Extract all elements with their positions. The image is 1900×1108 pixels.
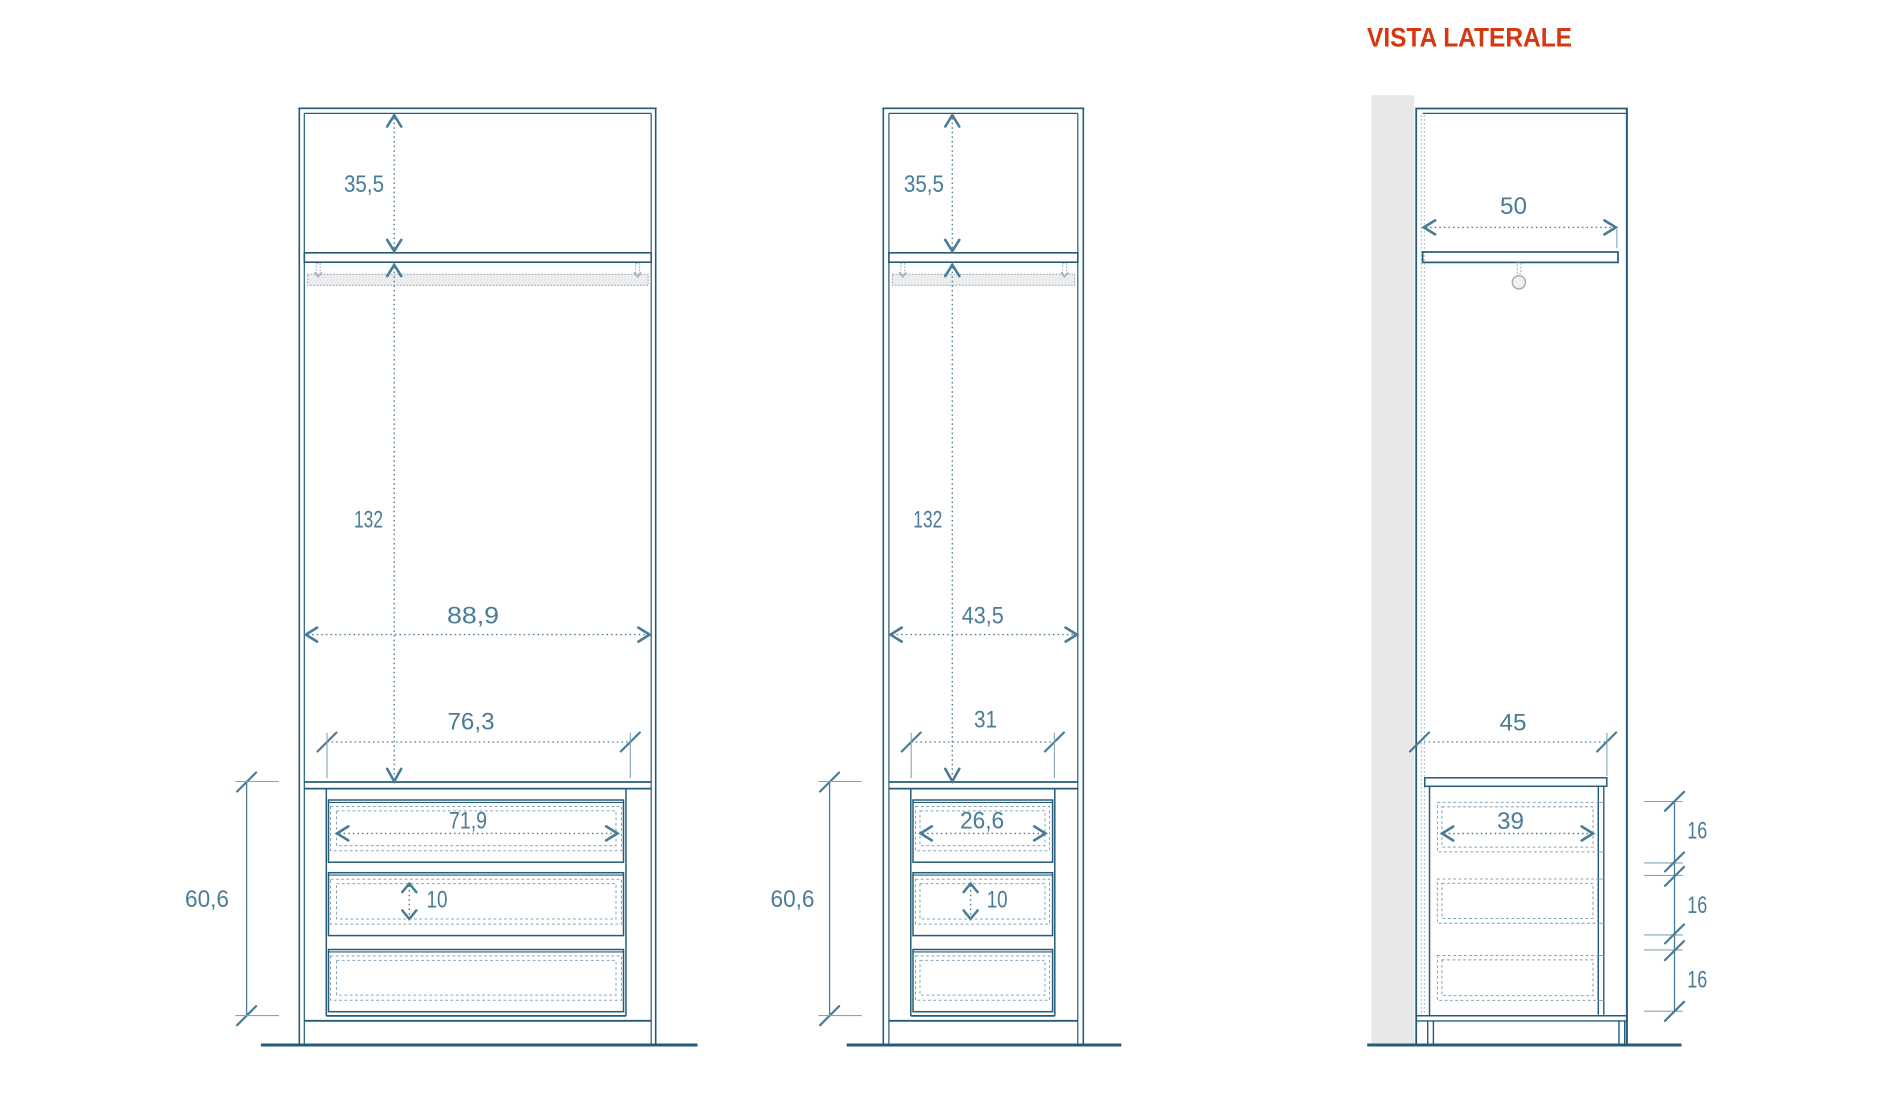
svg-text:16: 16 xyxy=(1687,817,1707,844)
svg-text:45: 45 xyxy=(1500,710,1527,737)
svg-text:132: 132 xyxy=(354,507,383,534)
svg-text:132: 132 xyxy=(913,507,942,534)
svg-text:43,5: 43,5 xyxy=(962,603,1004,630)
svg-text:16: 16 xyxy=(1687,892,1707,919)
svg-text:16: 16 xyxy=(1687,967,1707,994)
svg-text:60,6: 60,6 xyxy=(185,886,229,913)
svg-text:60,6: 60,6 xyxy=(771,886,815,913)
svg-text:71,9: 71,9 xyxy=(449,808,487,835)
svg-text:39: 39 xyxy=(1497,808,1524,835)
svg-text:26,6: 26,6 xyxy=(960,808,1004,835)
svg-text:VISTA LATERALE: VISTA LATERALE xyxy=(1367,22,1572,52)
svg-text:10: 10 xyxy=(987,887,1008,914)
svg-text:10: 10 xyxy=(427,887,448,914)
svg-text:31: 31 xyxy=(974,706,997,733)
svg-text:50: 50 xyxy=(1500,193,1527,220)
svg-text:88,9: 88,9 xyxy=(447,603,499,630)
svg-text:35,5: 35,5 xyxy=(344,171,384,198)
svg-text:35,5: 35,5 xyxy=(904,171,944,198)
svg-text:76,3: 76,3 xyxy=(448,709,495,736)
